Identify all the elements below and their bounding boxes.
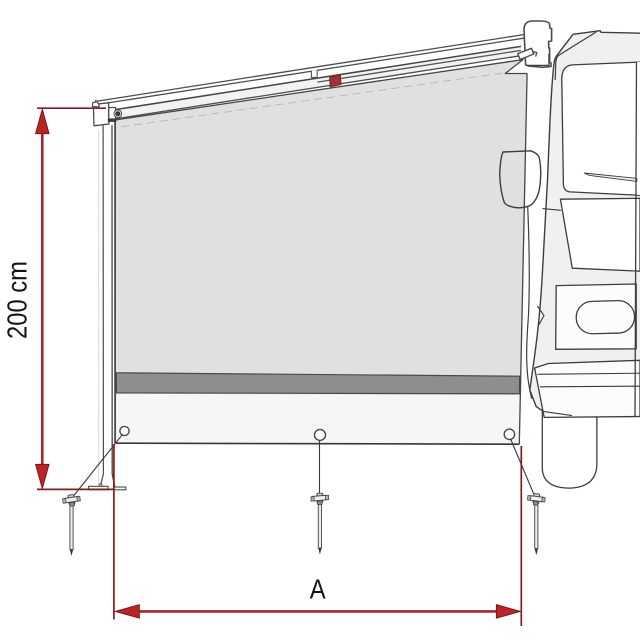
svg-text:A: A <box>310 572 326 604</box>
svg-text:200 cm: 200 cm <box>1 261 33 339</box>
